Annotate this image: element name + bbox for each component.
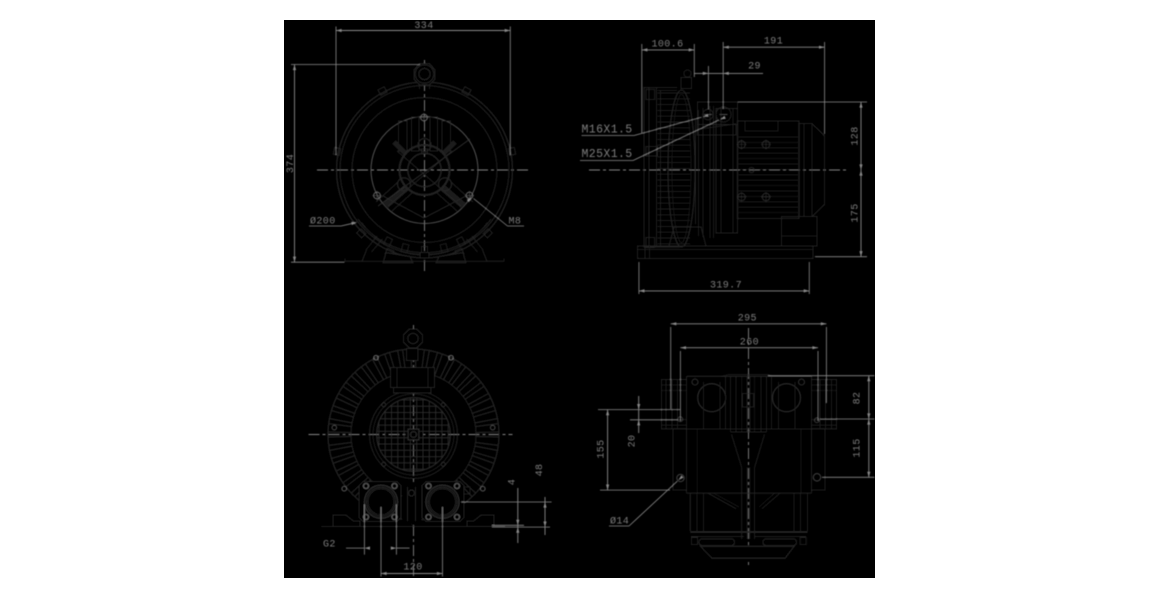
svg-text:374: 374 — [286, 154, 297, 173]
svg-text:319.7: 319.7 — [710, 281, 742, 292]
svg-text:M25X1.5: M25X1.5 — [582, 148, 633, 161]
svg-text:M16X1.5: M16X1.5 — [582, 124, 633, 137]
svg-text:334: 334 — [414, 21, 433, 32]
svg-text:191: 191 — [764, 37, 783, 48]
svg-text:120: 120 — [403, 563, 422, 574]
svg-text:29: 29 — [748, 62, 761, 73]
svg-text:4: 4 — [508, 479, 519, 485]
svg-text:115: 115 — [853, 438, 864, 457]
svg-text:260: 260 — [740, 337, 759, 348]
svg-text:175: 175 — [851, 203, 862, 222]
svg-text:G2: G2 — [323, 540, 336, 551]
svg-text:48: 48 — [535, 464, 546, 477]
svg-text:100.6: 100.6 — [651, 40, 683, 51]
svg-text:128: 128 — [851, 126, 862, 145]
svg-text:295: 295 — [738, 314, 757, 325]
svg-text:20: 20 — [628, 435, 639, 448]
svg-text:82: 82 — [853, 392, 864, 405]
svg-text:155: 155 — [597, 439, 608, 458]
